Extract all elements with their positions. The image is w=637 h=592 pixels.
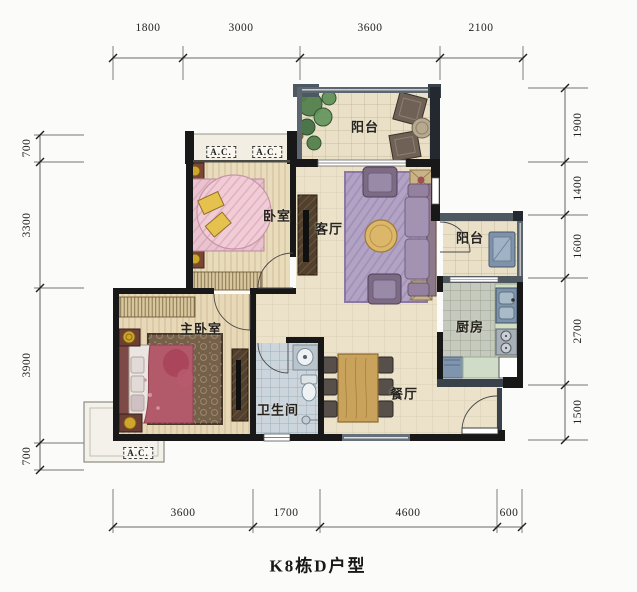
pillow [131, 357, 144, 373]
side-table-round [412, 118, 432, 138]
floor-drain [302, 416, 310, 424]
balcony-right-furniture [489, 232, 515, 267]
dim-top-4: 2100 [469, 22, 494, 34]
room-label-balcony-right: 阳台 [456, 228, 484, 247]
tv [303, 210, 309, 262]
pillow [131, 395, 144, 411]
dining-furniture [322, 354, 393, 422]
fridge [499, 357, 518, 378]
ac-unit-label-top-left: A.C. [206, 146, 236, 158]
lamp [124, 417, 136, 429]
sink [496, 288, 517, 323]
room-label-bedroom: 卧室 [263, 206, 291, 225]
room-label-living-room: 客厅 [315, 219, 343, 238]
dim-right-1: 1900 [572, 113, 584, 138]
dining-table [338, 354, 378, 422]
counter [463, 357, 499, 378]
lamp [123, 331, 135, 343]
dim-left-2: 3300 [21, 213, 33, 238]
dim-right-2: 1400 [572, 176, 584, 201]
tv [236, 360, 241, 410]
dim-top-2: 3000 [229, 22, 254, 34]
dim-left-3: 3900 [21, 353, 33, 378]
room-label-kitchen: 厨房 [456, 317, 484, 336]
window [432, 178, 439, 204]
ac-unit-label-bottom: A.C. [123, 447, 153, 459]
dim-right-3: 1600 [572, 234, 584, 259]
dim-top-3: 3600 [358, 22, 383, 34]
pillow [131, 376, 144, 392]
room-label-master-bedroom: 主卧室 [180, 319, 222, 338]
floorplan-page: 1800 3000 3600 2100 3600 1700 4600 600 7… [0, 0, 637, 592]
room-label-dining-room: 餐厅 [390, 384, 418, 403]
dim-top-1: 1800 [136, 22, 161, 34]
toilet [301, 375, 317, 401]
dim-right-4: 2700 [572, 319, 584, 344]
ac-unit-label-top-right: A.C. [252, 146, 282, 158]
stove [496, 329, 517, 355]
room-label-bathroom: 卫生间 [257, 400, 299, 419]
floorplan-drawing [0, 0, 637, 592]
bed-headboard [119, 345, 129, 423]
dim-bottom-3: 4600 [396, 507, 421, 519]
dim-right-5: 1500 [572, 400, 584, 425]
room-label-balcony-top: 阳台 [351, 117, 379, 136]
dim-bottom-1: 3600 [171, 507, 196, 519]
dim-left-4: 700 [21, 447, 33, 466]
dim-bottom-4: 600 [500, 507, 519, 519]
dim-bottom-2: 1700 [274, 507, 299, 519]
dim-left-1: 700 [21, 139, 33, 158]
plan-title: K8栋D户型 [270, 552, 367, 577]
